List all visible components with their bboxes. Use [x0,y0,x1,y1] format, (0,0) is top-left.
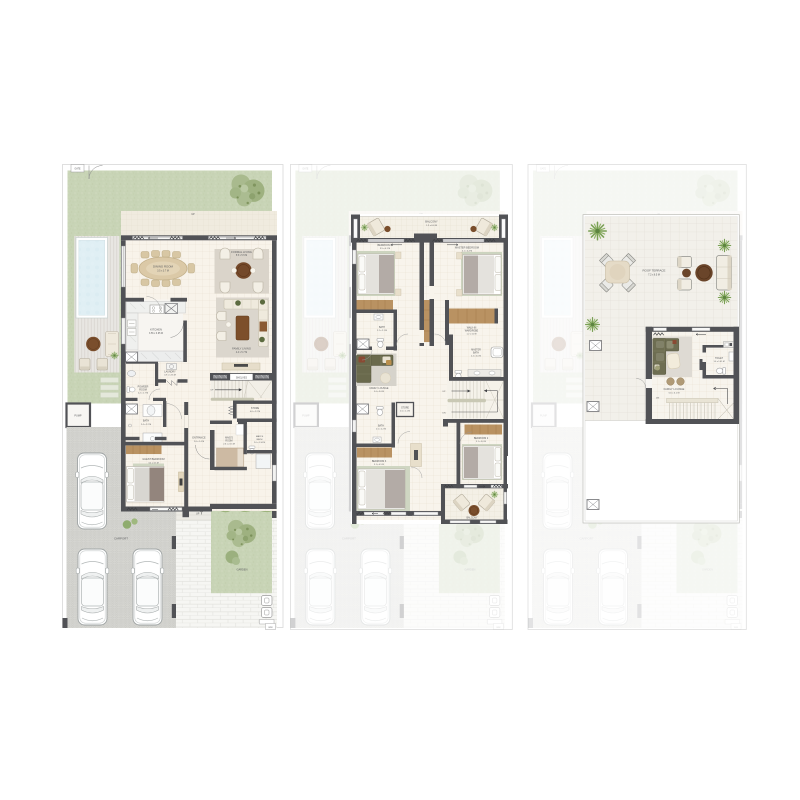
svg-text:DN: DN [443,412,447,414]
svg-text:ROOM: ROOM [225,441,232,443]
svg-text:WARDROBE: WARDROBE [465,329,479,332]
svg-text:7.2 x 6.5 M: 7.2 x 6.5 M [648,274,660,277]
svg-text:BATH: BATH [143,420,149,423]
svg-text:4.4 x 5.7 M: 4.4 x 5.7 M [236,352,247,354]
svg-text:ROOF TERRACE: ROOF TERRACE [643,268,666,272]
svg-text:MASTER: MASTER [471,349,481,352]
svg-text:BEDROOM 2: BEDROOM 2 [474,437,489,440]
svg-text:DINING ROOM: DINING ROOM [153,265,174,269]
svg-text:FAMILY LIVING: FAMILY LIVING [232,347,251,351]
svg-text:KITCHEN: KITCHEN [150,328,162,332]
svg-text:MAID'S: MAID'S [256,435,264,438]
svg-text:BATH: BATH [473,352,479,355]
svg-text:3.5 x 3.7 M: 3.5 x 3.7 M [157,269,169,272]
svg-text:STORE: STORE [251,407,260,410]
svg-text:2.0 x 1.1 M: 2.0 x 1.1 M [400,410,410,412]
svg-text:FORMAL LIVING: FORMAL LIVING [231,250,252,254]
svg-text:GUEST BEDROOM: GUEST BEDROOM [142,458,164,461]
svg-text:ROOM: ROOM [139,389,146,392]
svg-text:LAUNDRY: LAUNDRY [164,371,176,374]
svg-text:FAMILY LOUNGE: FAMILY LOUNGE [664,387,685,391]
svg-text:2.2 x 1.7 M: 2.2 x 1.7 M [138,393,149,395]
svg-text:PUMP: PUMP [74,415,82,418]
svg-text:3.5 x 4.1 M: 3.5 x 4.1 M [380,248,391,250]
svg-text:4.0 x 2.2 M: 4.0 x 2.2 M [250,411,261,413]
svg-text:2.6 x 2.15 M: 2.6 x 2.15 M [223,444,235,446]
svg-text:STORE: STORE [401,407,409,409]
svg-text:BALCONY: BALCONY [467,517,478,520]
svg-text:GATE: GATE [74,168,81,171]
svg-text:GARDEN: GARDEN [236,568,247,572]
svg-text:DN: DN [656,398,660,400]
svg-text:MAID'S: MAID'S [225,437,233,440]
svg-text:ENTRANCE: ENTRANCE [192,437,206,440]
svg-text:WALK-IN: WALK-IN [467,326,477,329]
svg-text:2.6 x 1.4 M: 2.6 x 1.4 M [194,441,205,443]
svg-text:3.1 x 3.0 M: 3.1 x 3.0 M [476,441,486,443]
svg-text:2.4 x 2.2 M: 2.4 x 2.2 M [141,424,152,426]
svg-text:0.9 x 1.35 M: 0.9 x 1.35 M [164,375,176,377]
svg-text:5.0 x 3.6 M: 5.0 x 3.6 M [374,391,384,393]
svg-text:BATH: BATH [378,425,384,428]
svg-text:CARPORT: CARPORT [114,537,128,541]
svg-text:UP: UP [196,513,200,516]
svg-text:1.2 x 6.6 M: 1.2 x 6.6 M [426,225,437,227]
svg-text:5.6 x 5.1 M: 5.6 x 5.1 M [669,392,680,394]
svg-text:FAMILY LOUNGE: FAMILY LOUNGE [369,387,388,390]
svg-text:2.2 x 5.0 M: 2.2 x 5.0 M [471,356,481,358]
svg-text:SHELVES: SHELVES [236,377,248,380]
svg-text:3.56 x 3.95 M: 3.56 x 3.95 M [149,333,163,335]
svg-text:1.2 x 3.0 M: 1.2 x 3.0 M [467,334,477,336]
svg-text:2.5 x 2.2 M: 2.5 x 2.2 M [376,429,386,431]
svg-text:BATH: BATH [379,326,385,329]
svg-text:TOILET: TOILET [715,358,724,360]
svg-text:2.0 x 1.34 M: 2.0 x 1.34 M [254,442,265,444]
svg-text:3.1 x 4.5 M: 3.1 x 4.5 M [374,464,384,466]
svg-text:BATH: BATH [257,438,263,441]
svg-text:BEDROOM 1: BEDROOM 1 [377,244,393,247]
svg-text:UP: UP [191,213,195,216]
svg-text:2.2 x 2.1 M: 2.2 x 2.1 M [377,330,387,332]
svg-text:5.5 x 5.5 M: 5.5 x 5.5 M [236,255,247,257]
svg-text:BEDROOM 3: BEDROOM 3 [372,460,387,463]
svg-text:MASTER BEDROOM: MASTER BEDROOM [455,246,479,249]
svg-text:1.6 x 1.65 M: 1.6 x 1.65 M [713,361,724,363]
svg-text:BALCONY: BALCONY [425,219,438,223]
